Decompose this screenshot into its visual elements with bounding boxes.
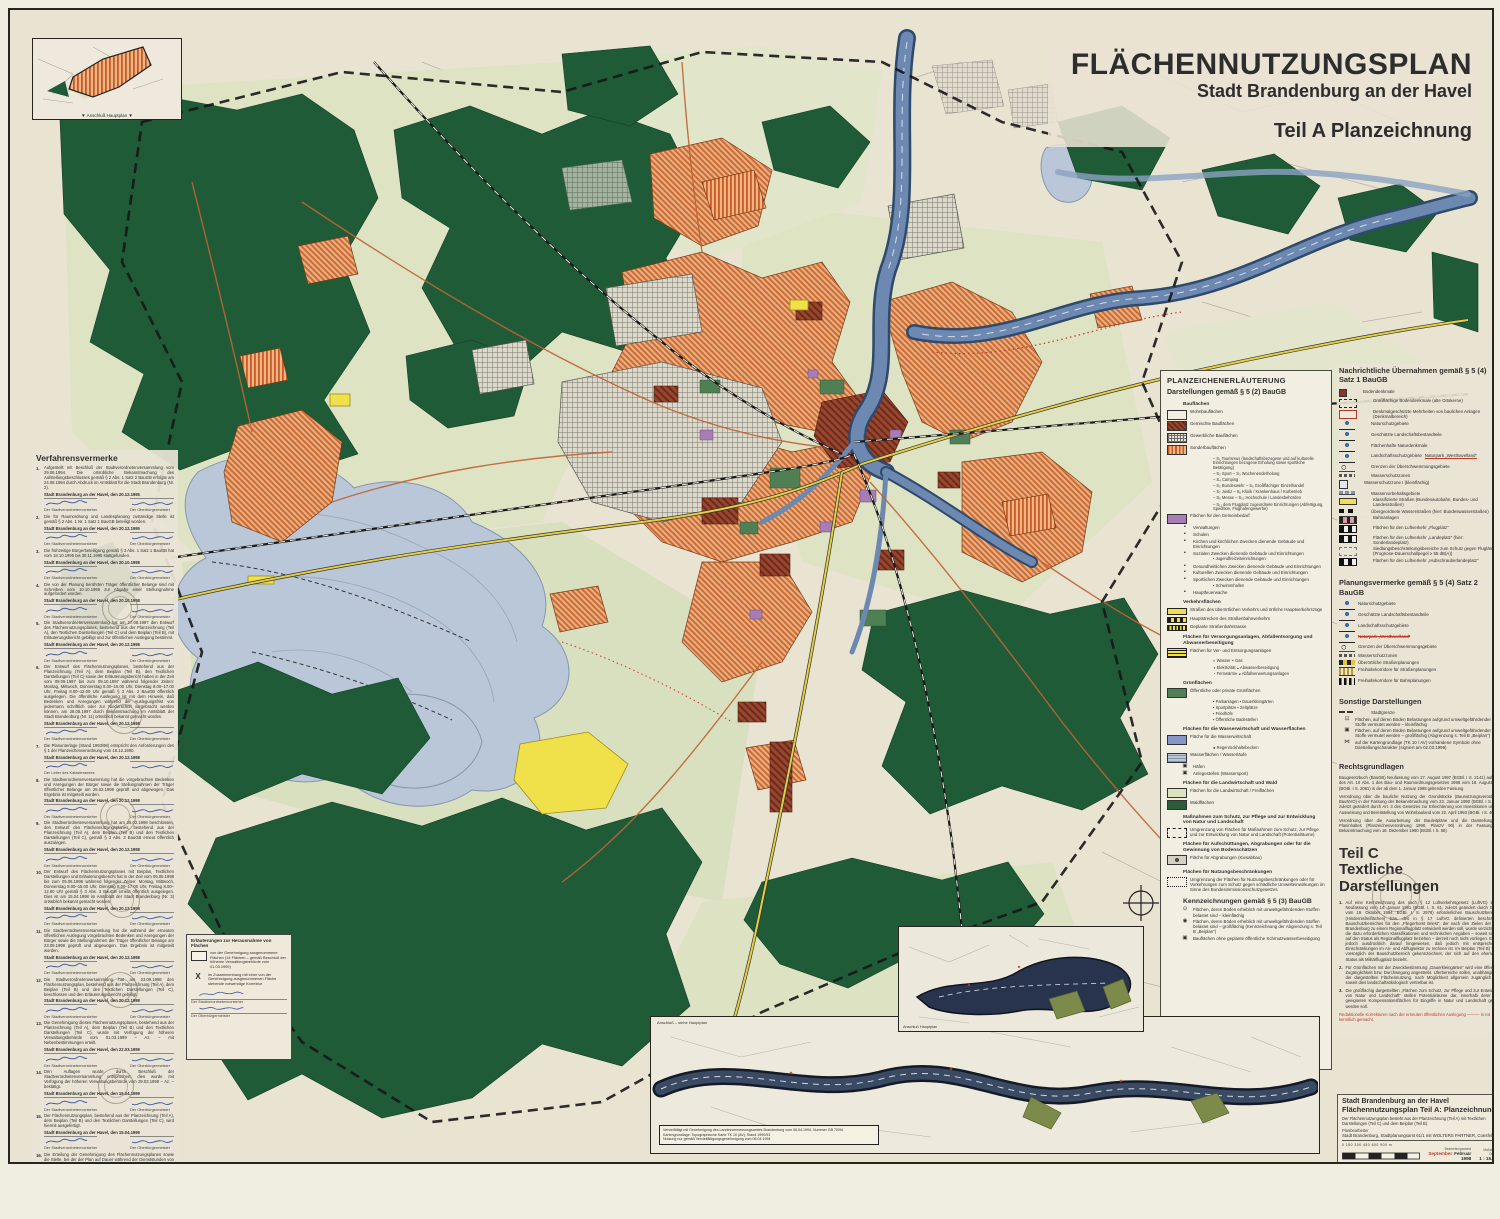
signature-right-label: Der Oberbürgermeister: [130, 1004, 174, 1019]
legend-row: ▪ Kirchen und kirchlichen Zwecken dienen…: [1167, 539, 1325, 549]
masstab-label: Maßstab im Original: [1475, 1148, 1494, 1156]
symbol-swatch: [1339, 432, 1355, 441]
signature-scribble: [191, 990, 251, 998]
legend-swatch: [1167, 608, 1187, 615]
legend-row: ▪ Verwaltungen: [1167, 525, 1325, 531]
signature-left-label: Der Stadtverordnetenvorsteher: [44, 727, 97, 742]
legend-row: Straßen des überörtlichen Verkehrs und ö…: [1167, 607, 1325, 615]
symbol-swatch: [1339, 612, 1355, 621]
item-text: Die Stadtverordnetenversammlung hat die …: [44, 778, 174, 798]
item-date: Stadt Brandenburg an der Havel, den 20.1…: [44, 492, 174, 497]
map-credit-box: Vervielfältigt mit Genehmigung des Lande…: [659, 1125, 879, 1145]
inset-caption: Anschluß Hauptplan: [903, 1025, 937, 1029]
legend-label: Flächen für die Landwirtschaft / Freiflä…: [1190, 788, 1274, 793]
signature-right-label: Der Oberbürgermeister: [130, 804, 174, 819]
item-date: Stadt Brandenburg an der Havel, den 20.1…: [44, 906, 174, 911]
legend-label: Hauptfeuerwache: [1193, 590, 1227, 595]
legend-glyph-icon: ▪: [1180, 577, 1190, 583]
signature-right-label: Der Oberbürgermeister: [130, 853, 174, 868]
signature-left-label: Der Stadtverordnetenvorsteher: [44, 604, 97, 619]
signature-right-label: Der Oberbürgermeister: [130, 566, 174, 581]
symbol-label: Naturschutzgebiete: [1358, 601, 1396, 606]
credit-line: Nutzung nur gemäß Vervielfältigungsgeneh…: [663, 1137, 875, 1142]
legend-label: ◔ Fernwärme ◕ Abfallverwertungsanlagen: [1213, 672, 1289, 677]
verfahrensvermerk-item: 15. Der Flächennutzungsplan, bestehend a…: [36, 1114, 174, 1150]
signature-scribble: [44, 762, 88, 770]
legend-row: Gemischte Bauflächen: [1167, 421, 1325, 432]
legend-label: ▪ Parkanlagen ▪ Dauerkleingärten: [1213, 700, 1273, 705]
legend-row: Flächen für die Wasserwirtschaft und Was…: [1167, 724, 1325, 733]
signature-right-label: Der Oberbürgermeister: [191, 1013, 287, 1018]
symbol-swatch: [1339, 465, 1355, 472]
signature-right-label: Der Oberbürgermeister: [130, 727, 174, 742]
legend-label: Wohnbauflächen: [1190, 409, 1223, 414]
legend-row: Flächen für den Gemeinbedarf: [1167, 513, 1325, 524]
symbol-swatch: [1339, 547, 1357, 556]
legend-swatch: [1167, 753, 1187, 763]
signature-scribble: [44, 1137, 88, 1145]
signature-scribble: [130, 855, 174, 863]
x-mark-icon: X: [191, 973, 205, 987]
symbol-glyph-icon: ▣: [1342, 728, 1352, 734]
symbol-swatch: [1339, 389, 1347, 397]
legend-row: Wasserflächen / Wasserläufe: [1167, 752, 1325, 763]
inset-map-graphic: [33, 39, 180, 109]
plan-title: FLÄCHENNUTZUNGSPLAN: [1054, 50, 1472, 81]
sonstige-section: Sonstige Darstellungen Stadtgrenze ⊡ Flä…: [1339, 697, 1494, 750]
symbol-label: Flächen für den Luftverkehr „Hubschraube…: [1373, 558, 1478, 563]
signature-left-label: Der Stadtverordnetenvorsteher: [44, 804, 97, 819]
legend-row: ◉ Flächen, deren Böden erheblich mit umw…: [1167, 919, 1325, 934]
legend-label: Umgrenzung der Flächen für Nutzungsbesch…: [1190, 877, 1325, 892]
signature-left-label: Der Stadtverordnetenvorsteher: [44, 648, 97, 663]
signature-scribble: [130, 1137, 174, 1145]
legend-row: ● Regenrückhaltebecken: [1167, 746, 1325, 751]
legend-swatch: [1167, 735, 1187, 745]
verfahrensvermerk-item: 2. Die für Raumordnung und Landesplanung…: [36, 515, 174, 546]
legend-row: ◐ Wasser ◓ Gas: [1167, 659, 1325, 664]
legend-swatch: [1167, 410, 1187, 420]
item-date: Stadt Brandenburg an der Havel, den 20.1…: [44, 755, 174, 760]
symbol-label: Flächen, auf deren Böden Belastungen auf…: [1355, 717, 1494, 727]
symbol-swatch: [1339, 498, 1357, 505]
verfahrensvermerk-item: 4. Die von der Planung berührten Träger …: [36, 583, 174, 619]
uebernahmen-row: Bahnanlagen: [1339, 515, 1494, 524]
legend-row: Sonderbauflächen: [1167, 445, 1325, 456]
uebernahmen-row: Bodendenkmale: [1339, 389, 1494, 398]
legend-label: Flächen für die Wasserwirtschaft und Was…: [1183, 727, 1305, 733]
legend-row: Öffentliche oder private Grünflächen: [1167, 688, 1325, 699]
symbol-label: Übergeordnete Wasserstraßen (hier: Bunde…: [1371, 509, 1489, 514]
legend-row: – S₁ Tourismus (landschaftsbezogene und …: [1167, 457, 1325, 471]
legend-row: – S₅ Bundeswehr – S₆ Großflächiger Einze…: [1167, 484, 1325, 489]
plan-part-label: Teil A Planzeichnung: [1054, 120, 1472, 143]
uebernahmen-row: Wasservorbehaltsgebiete: [1339, 491, 1494, 496]
legend-label: Flächen, deren Böden erheblich mit umwel…: [1193, 907, 1325, 917]
symbol-label: Grenzen der Überschwemmungsgebiete: [1358, 644, 1437, 649]
legend-label: Gemischte Bauflächen: [1190, 421, 1234, 426]
symbol-swatch: [1339, 410, 1357, 419]
signature-scribble: [130, 650, 174, 658]
legend-row: ▪ Öffentliche Badestellen: [1167, 718, 1325, 723]
rechtsgrundlagen-paragraph: Verordnung über die bauliche Nutzung der…: [1339, 794, 1494, 815]
item-number: 4.: [36, 583, 42, 619]
teil-c-item: 1. Auf eine Kennzeichnung des nach § 12 …: [1339, 900, 1494, 962]
legend-label: Verkehrsflächen: [1183, 600, 1221, 606]
legend-label: ▪ Jugendfreizeiteinrichtungen: [1213, 557, 1266, 562]
item-number: 5.: [36, 621, 42, 662]
legend-row: – S₂ Sport – S₃ Wochenenderholung: [1167, 472, 1325, 477]
symbol-glyph-icon: ⋈: [1342, 740, 1352, 746]
legend-row: Gewerbliche Bauflächen: [1167, 433, 1325, 444]
symbol-label: Flächen für den Luftverkehr „Landeplatz“…: [1373, 535, 1494, 545]
planungsvermerke-row: Geschützte Landschaftsbestandteile: [1339, 612, 1494, 622]
item-number: 3.: [1339, 988, 1343, 1009]
legend-row: ▪ Jugendfreizeiteinrichtungen: [1167, 557, 1325, 562]
legend-glyph-icon: ▣: [1180, 764, 1190, 770]
signature-scribble: [44, 728, 88, 736]
item-text: Die Stadtverordnetenversammlung hat am 2…: [44, 821, 174, 846]
legend-row: Kennzeichnungen gemäß § 5 (3) BauGB: [1167, 893, 1325, 906]
uebernahmen-row: Geschützte Landschaftsbestandteile: [1339, 432, 1494, 442]
legend-row: ▣ Häfen: [1167, 764, 1325, 770]
signature-left-label: Der Stadtverordnetenvorsteher: [44, 566, 97, 581]
symbol-label: Denkmalgeschützte Mehrheiten von baulich…: [1373, 409, 1494, 419]
inset-map-lake: Anschluß Hauptplan: [898, 926, 1144, 1032]
verfahrensvermerk-item: 10. Der Entwurf des Flächennutzungsplane…: [36, 870, 174, 926]
item-text: Die für Raumordnung und Landesplanung zu…: [44, 515, 174, 525]
legend-row: Hauptstrecken des Straßenbahnverkehrs: [1167, 616, 1325, 623]
plan-footer-box: Stadt Brandenburg an der Havel Flächennu…: [1337, 1094, 1494, 1164]
legend-swatch: [1167, 800, 1187, 810]
correction-label: im Zusammenhang mit einer von der Genehm…: [208, 973, 287, 987]
signature-right-label: Der Oberbürgermeister: [130, 532, 174, 547]
legend-label: Bauflächen ohne geplante öffentliche Sch…: [1193, 936, 1320, 941]
legend-glyph-icon: ⊙: [1180, 907, 1190, 913]
symbol-swatch: [1339, 491, 1355, 495]
legend-glyph-icon: ▣: [1180, 936, 1190, 942]
item-number: 10.: [36, 870, 42, 926]
item-number: 2.: [36, 515, 42, 546]
legend-label: Schulen: [1193, 532, 1209, 537]
signature-left-label: Der Stadtverordnetenvorsteher: [44, 1004, 97, 1019]
legend-glyph-icon: ◉: [1180, 919, 1190, 925]
item-text: Den Auflagen wurde durch Beschluß der St…: [44, 1070, 174, 1090]
item-date: Stadt Brandenburg an der Havel, den 20.1…: [44, 560, 174, 565]
legend-swatch: [1167, 828, 1187, 838]
item-text: Für Grünflächen mit der Zweckbestimmung …: [1346, 965, 1495, 986]
herausnahme-box: Erläuterungen zur Herausnahme von Fläche…: [186, 934, 292, 1060]
legend-glyph-icon: ▪: [1180, 532, 1190, 538]
legend-label: Straßen des überörtlichen Verkehrs und ö…: [1190, 607, 1322, 612]
legend-label: Anlegestellen (Wassersport): [1193, 771, 1248, 776]
item-date: Stadt Brandenburg an der Havel, den 22.0…: [44, 1047, 174, 1052]
planungsvermerke-row: Überörtliche Straßenplanungen: [1339, 660, 1494, 666]
symbol-glyph-icon: ⊡: [1342, 717, 1352, 723]
legend-row: ▪ Friedhöfe: [1167, 712, 1325, 717]
symbol-label: Wasserschutzzonen: [1358, 653, 1397, 658]
symbol-swatch: [1339, 474, 1355, 478]
legend-row: Flächen für Versorgungsanlagen, Abfallen…: [1167, 632, 1325, 646]
uebernahmen-row: Denkmalgeschützte Mehrheiten von baulich…: [1339, 409, 1494, 419]
legend-label: Flächen für den Gemeinbedarf: [1190, 513, 1250, 518]
signature-scribble: [130, 533, 174, 541]
symbol-label: Siedlungsbeschränkungsbereiche zum Schut…: [1373, 546, 1494, 556]
signature-scribble: [130, 962, 174, 970]
planungsvermerke-row: Freihaltekorridore für Straßenplanungen: [1339, 667, 1494, 677]
legend-glyph-icon: ▪: [1180, 570, 1190, 576]
verfahrensvermerk-item: 6. Der Entwurf des Flächennutzungsplanes…: [36, 665, 174, 741]
item-number: 2.: [1339, 965, 1343, 986]
footer-city: Stadt Brandenburg an der Havel: [1342, 1098, 1494, 1105]
item-number: 16.: [36, 1153, 42, 1164]
legend-row: ▪ Sportplätze ▪ Zeltplätze: [1167, 706, 1325, 711]
planungsvermerke-row: Naturschutzgebiete: [1339, 601, 1494, 611]
item-date: Stadt Brandenburg an der Havel, den 20.1…: [44, 955, 174, 960]
legend-glyph-icon: ▣: [1180, 771, 1190, 777]
legend-row: ▣ Anlegestellen (Wassersport): [1167, 771, 1325, 777]
symbol-label: Wasservorbehaltsgebiete: [1371, 491, 1420, 496]
item-number: 12.: [36, 978, 42, 1019]
legend-label: Häfen: [1193, 764, 1205, 769]
symbol-label: Bahnanlagen: [1373, 515, 1399, 520]
symbol-swatch: [1339, 660, 1355, 665]
legend-glyph-icon: ▪: [1180, 525, 1190, 531]
item-number: 11.: [36, 929, 42, 975]
verfahrensvermerk-item: 16. Die Erteilung der Genehmigung des Fl…: [36, 1153, 174, 1164]
legend-label: ◐ Wasser ◓ Gas: [1213, 659, 1243, 664]
signature-scribble: [44, 1006, 88, 1014]
inset-map-river-strip: Anschluß – siehe Hauptplan Vervielfältig…: [650, 1016, 1320, 1154]
signature-scribble: [130, 499, 174, 507]
legend-swatch: [1167, 855, 1187, 865]
legend-row: ▪ Sozialen Zwecken dienende Gebäude und …: [1167, 551, 1325, 557]
legend-row: – S₁₁ dem Flugplatz zugeordnete Einricht…: [1167, 503, 1325, 512]
verfahrensvermerke-list: 1. Aufgestellt mit Beschluß der Stadtver…: [36, 466, 174, 1164]
verfahrensvermerk-item: 13. Die Genehmigung dieses Flächennutzun…: [36, 1021, 174, 1067]
signature-left-label: Der Stadtverordnetenvorsteher: [44, 912, 97, 927]
symbol-label: Freihaltekorridore für Bahnplanungen: [1358, 678, 1431, 683]
legend-swatch: [1167, 445, 1187, 455]
legend-rows: Bauflächen Wohnbauflächen Gemischte Bauf…: [1167, 399, 1325, 941]
legend-label: ◑ Elektrizität ◒ Abwasserbeseitigung: [1213, 666, 1279, 671]
teil-c-section: Teil CTextliche Darstellungen 1. Auf ein…: [1339, 846, 1494, 1022]
legend-label: Hauptstrecken des Straßenbahnverkehrs: [1190, 616, 1270, 621]
footer-plan-name: Flächennutzungsplan Teil A: Planzeichnun…: [1342, 1105, 1494, 1114]
legend-row: Flächen für Aufschüttungen, Abgrabungen …: [1167, 839, 1325, 853]
legend-label: ● Regenrückhaltebecken: [1213, 746, 1259, 751]
legend-swatch: [1167, 433, 1187, 443]
legend-row: Geplante Straßenbahntrasse: [1167, 624, 1325, 631]
signature-left-label: Der Stadtverordnetenvorsteher: [44, 961, 97, 976]
planungsvermerke-row: Grenzen der Überschwemmungsgebiete: [1339, 644, 1494, 652]
teil-c-title: Teil CTextliche Darstellungen: [1339, 846, 1494, 896]
title-block: FLÄCHENNUTZUNGSPLAN Stadt Brandenburg an…: [1048, 46, 1478, 147]
item-number: 9.: [36, 821, 42, 867]
legend-row: ▪ Hauptfeuerwache: [1167, 590, 1325, 596]
planungsvermerke-row: Wasserschutzzonen: [1339, 653, 1494, 658]
signature-scribble: [44, 1099, 88, 1107]
item-number: 3.: [36, 549, 42, 580]
symbol-swatch: [1339, 678, 1355, 685]
plan-sheet: FLÄCHENNUTZUNGSPLAN Stadt Brandenburg an…: [8, 8, 1494, 1164]
signature-right-label: Der Oberbürgermeister: [130, 912, 174, 927]
signature-right-label: Der Oberbürgermeister: [130, 604, 174, 619]
symbol-swatch: [1339, 654, 1355, 658]
rechtsgrundlagen-section: Rechtsgrundlagen Baugesetzbuch (BauGB) N…: [1339, 762, 1494, 834]
item-text: Die Erteilung der Genehmigung des Fläche…: [44, 1153, 174, 1164]
legend-label: Kennzeichnungen gemäß § 5 (3) BauGB: [1183, 898, 1312, 906]
verfahrensvermerke-title: Verfahrensvermerke: [36, 453, 174, 463]
item-text: Die Stadtverordnetenversammlung hat die …: [44, 929, 174, 954]
verfahrensvermerk-item: 5. Die Stadtverordnetenversammlung hat a…: [36, 621, 174, 662]
legend-row: Umgrenzung von Flächen für Maßnahmen zum…: [1167, 827, 1325, 838]
legend-glyph-icon: ▪: [1180, 539, 1190, 545]
masstab-value: 1 : 15.000: [1475, 1156, 1494, 1161]
legend-label: Wasserflächen / Wasserläufe: [1190, 752, 1247, 757]
legend-label: – S₅ Bundeswehr – S₆ Großflächiger Einze…: [1213, 484, 1304, 489]
signature-right-label: Der Oberbürgermeister: [130, 498, 174, 513]
scale-numbers: 0 150 300 450 600 900 m: [1342, 1143, 1420, 1147]
legend-swatch: [1167, 648, 1187, 658]
legend-label: Verwaltungen: [1193, 525, 1220, 530]
legend-row: Fläche für Abgrabungen (Kiesabbau): [1167, 855, 1325, 866]
signature-scribble: [44, 499, 88, 507]
legend-row: ◑ Elektrizität ◒ Abwasserbeseitigung: [1167, 666, 1325, 671]
legend-panel: PLANZEICHENERLÄUTERUNG Darstellungen gem…: [1160, 370, 1332, 1070]
symbol-label: Flächen für den Luftverkehr „Flugplatz“: [1373, 525, 1449, 530]
rechtsgrundlagen-paragraph: Baugesetzbuch (BauGB) Neufassung vom 27.…: [1339, 775, 1494, 791]
item-number: 1.: [1339, 900, 1343, 962]
teil-c-item: 2. Für Grünflächen mit der Zweckbestimmu…: [1339, 965, 1494, 986]
item-date: Stadt Brandenburg an der Havel, den 20.1…: [44, 598, 174, 603]
signature-left-label: Der Stadtverordnetenvorsteher: [44, 498, 97, 513]
verfahrensvermerk-item: 8. Die Stadtverordnetenversammlung hat d…: [36, 778, 174, 819]
uebernahmen-row: Flächen für den Luftverkehr „Hubschraube…: [1339, 558, 1494, 567]
symbol-label: Naturpark „Westhavelland“: [1358, 634, 1410, 639]
legend-title: PLANZEICHENERLÄUTERUNG: [1167, 376, 1325, 385]
symbol-swatch: [1339, 443, 1355, 452]
symbol-label: Landschaftsschutzgebiete: [1371, 453, 1422, 458]
scale-bar: [1342, 1152, 1420, 1160]
inset-caption: ▼ Anschluß Hauptplan ▼: [33, 113, 181, 118]
legend-glyph-icon: ▪: [1180, 551, 1190, 557]
signature-scribble: [44, 1055, 88, 1063]
signature-right-label: [130, 761, 174, 776]
legend-row: ▪ Schwimmhallen: [1167, 584, 1325, 589]
legend-label: Bauflächen: [1183, 402, 1209, 408]
legend-label: Flächen für Versorgungsanlagen, Abfallen…: [1183, 635, 1325, 646]
symbol-label: Klassifizierte Straßen (Bundesautobahn, …: [1373, 497, 1494, 507]
legend-swatch: [1167, 421, 1187, 431]
item-text: Der Flächennutzungsplan, bestehend aus d…: [44, 1114, 174, 1129]
item-text: Die Stadtverordnetenversammlung hat am 2…: [44, 621, 174, 641]
scanned-plan-sheet: { "palette":{"paper":"#e9e3d2","forest":…: [0, 0, 1500, 1219]
item-text: Die großflächig dargestellten „Flächen z…: [1346, 988, 1495, 1009]
symbol-swatch: [1339, 516, 1357, 524]
legend-label: Flächen, deren Böden erheblich mit umwel…: [1193, 919, 1325, 934]
legend-row: Flächen für Nutzungsbeschränkungen: [1167, 867, 1325, 876]
item-text: Der Entwurf des Flächennutzungsplanes mi…: [44, 870, 174, 905]
excluded-area-swatch: [191, 951, 207, 961]
symbol-label: Wasserschutzzonen: [1371, 473, 1410, 478]
legend-label: ▪ Schwimmhallen: [1213, 584, 1244, 589]
sonstige-row: ⋈ auf der Kartengrundlage (TK 10 / AV) v…: [1339, 740, 1494, 750]
signature-right-label: Der Oberbürgermeister: [130, 961, 174, 976]
herausnahme-title: Erläuterungen zur Herausnahme von Fläche…: [191, 938, 287, 948]
legend-row: – S₇ Justiz – S₈ Klinik / Krankenhaus / …: [1167, 490, 1325, 495]
legend-label: Flächen für Nutzungsbeschränkungen: [1183, 870, 1272, 876]
signature-scribble: [44, 913, 88, 921]
signature-scribble: [130, 913, 174, 921]
plan-subtitle: Stadt Brandenburg an der Havel: [1054, 81, 1472, 102]
uebernahmen-row: Siedlungsbeschränkungsbereiche zum Schut…: [1339, 546, 1494, 556]
legend-label: ▪ Öffentliche Badestellen: [1213, 718, 1258, 723]
item-date: Stadt Brandenburg an der Havel, den 20.1…: [44, 526, 174, 531]
signature-scribble: [130, 806, 174, 814]
sonstige-row: Stadtgrenze: [1339, 710, 1494, 715]
symbol-swatch: [1339, 525, 1357, 533]
legend-label: – S₁₁ dem Flugplatz zugeordnete Einricht…: [1213, 503, 1325, 512]
planungsvermerke-row: Naturpark „Westhavelland“: [1339, 634, 1494, 644]
symbol-swatch: [1339, 535, 1357, 543]
legend-row: – S₉ Messe – S₁₀ Hochschule / Landesbehö…: [1167, 496, 1325, 501]
footer-description: Der Flächennutzungsplan besteht aus der …: [1342, 1116, 1494, 1126]
verfahrensvermerk-item: 1. Aufgestellt mit Beschluß der Stadtver…: [36, 466, 174, 512]
legend-label: Flächen für Ver- und Entsorgungsanlagen: [1190, 648, 1271, 653]
symbol-label: Flächen, auf deren Böden Belastungen auf…: [1355, 728, 1494, 738]
item-date: Stadt Brandenburg an der Havel, den 15.0…: [44, 1130, 174, 1135]
inset-map-hauptplan-anschluss: ▼ Anschluß Hauptplan ▼: [32, 38, 182, 120]
symbol-swatch: [1339, 509, 1355, 513]
symbol-swatch: [1339, 711, 1355, 714]
legend-subtitle: Darstellungen gemäß § 5 (2) BauGB: [1167, 389, 1325, 396]
symbol-swatch: [1339, 634, 1355, 643]
item-date: Stadt Brandenburg an der Havel, den 15.0…: [44, 1091, 174, 1096]
item-date: Stadt Brandenburg an der Havel, den 20.1…: [44, 798, 174, 803]
legend-row: Wohnbauflächen: [1167, 409, 1325, 420]
legend-label: Umgrenzung von Flächen für Maßnahmen zum…: [1190, 827, 1325, 837]
legend-row: ▪ Kulturellen Zwecken dienende Gebäude u…: [1167, 570, 1325, 576]
signature-scribble: [44, 567, 88, 575]
symbol-swatch: [1339, 623, 1355, 632]
item-date: Stadt Brandenburg an der Havel, den 20.1…: [44, 847, 174, 852]
verfahrensvermerke-panel: Verfahrensvermerke 1. Aufgestellt mit Be…: [32, 450, 178, 1164]
symbol-swatch: [1339, 399, 1357, 408]
item-number: 15.: [36, 1114, 42, 1150]
verfahrensvermerk-item: 11. Die Stadtverordnetenversammlung hat …: [36, 929, 174, 975]
legend-label: – S₉ Messe – S₁₀ Hochschule / Landesbehö…: [1213, 496, 1301, 501]
legend-row: Verkehrsflächen: [1167, 597, 1325, 606]
signature-scribble: [130, 728, 174, 736]
legend-label: Geplante Straßenbahntrasse: [1190, 624, 1246, 629]
uebernahmen-row: Naturschutzgebiete: [1339, 421, 1494, 431]
legend-row: ◔ Fernwärme ◕ Abfallverwertungsanlagen: [1167, 672, 1325, 677]
legend-label: Sozialen Zwecken dienende Gebäude und Ei…: [1193, 551, 1304, 556]
legend-row: Flächen für die Landwirtschaft und Wald: [1167, 778, 1325, 787]
item-date: Stadt Brandenburg an der Havel, den 20.1…: [44, 642, 174, 647]
strip-caption: Anschluß – siehe Hauptplan: [657, 1020, 707, 1025]
sonstige-title: Sonstige Darstellungen: [1339, 697, 1494, 706]
legend-label: Flächen für Aufschüttungen, Abgrabungen …: [1183, 842, 1325, 853]
legend-label: Flächen für die Landwirtschaft und Wald: [1183, 781, 1277, 787]
signature-left-label: Der Stadtverordnetenvorsteher: [44, 1053, 97, 1068]
verfahrensvermerk-item: 12. Die Stadtverordnetenversammlung hat …: [36, 978, 174, 1019]
sonstige-row: ⊡ Flächen, auf deren Böden Belastungen a…: [1339, 717, 1494, 727]
planungsvermerke-row: Freihaltekorridore für Bahnplanungen: [1339, 678, 1494, 686]
legend-label: Kulturellen Zwecken dienende Gebäude und…: [1193, 570, 1308, 575]
legend-glyph-icon: ▪: [1180, 590, 1190, 596]
